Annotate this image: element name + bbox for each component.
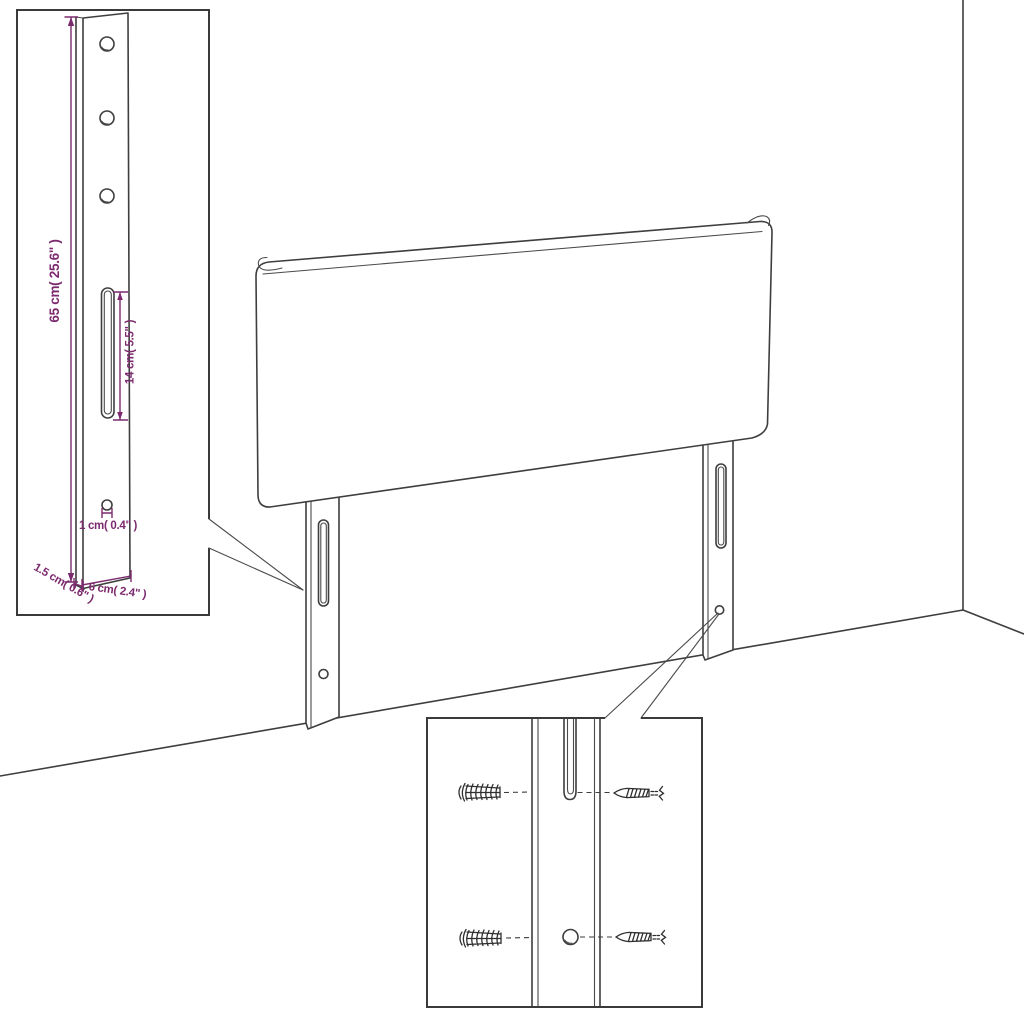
slot-length-label: 14 cm( 5.5" ) bbox=[125, 319, 137, 384]
bracket-drawing bbox=[76, 13, 130, 589]
panel-outline bbox=[256, 221, 772, 507]
left-leg bbox=[306, 470, 339, 729]
right-leg bbox=[703, 420, 733, 660]
fastener-detail-callout bbox=[427, 613, 719, 1007]
fastener-callout-leader-left bbox=[605, 613, 718, 718]
top-dash-left bbox=[504, 792, 531, 793]
diagram-canvas: 65 cm( 25.6" ) 14 cm( 5.5" ) 1 cm( 0.4" … bbox=[0, 0, 1024, 1024]
bottom-dash-left bbox=[506, 938, 531, 939]
floor-line-right bbox=[963, 610, 1024, 634]
fastener-callout-leader-right bbox=[641, 614, 719, 718]
bracket-height-label: 65 cm( 25.6" ) bbox=[47, 239, 62, 322]
headboard-dimension-diagram: 65 cm( 25.6" ) 14 cm( 5.5" ) 1 cm( 0.4" … bbox=[0, 0, 1024, 1024]
headboard-panel bbox=[256, 216, 772, 507]
bracket-front-face bbox=[83, 13, 130, 589]
hole-diameter-label: 1 cm( 0.4" ) bbox=[79, 520, 138, 532]
